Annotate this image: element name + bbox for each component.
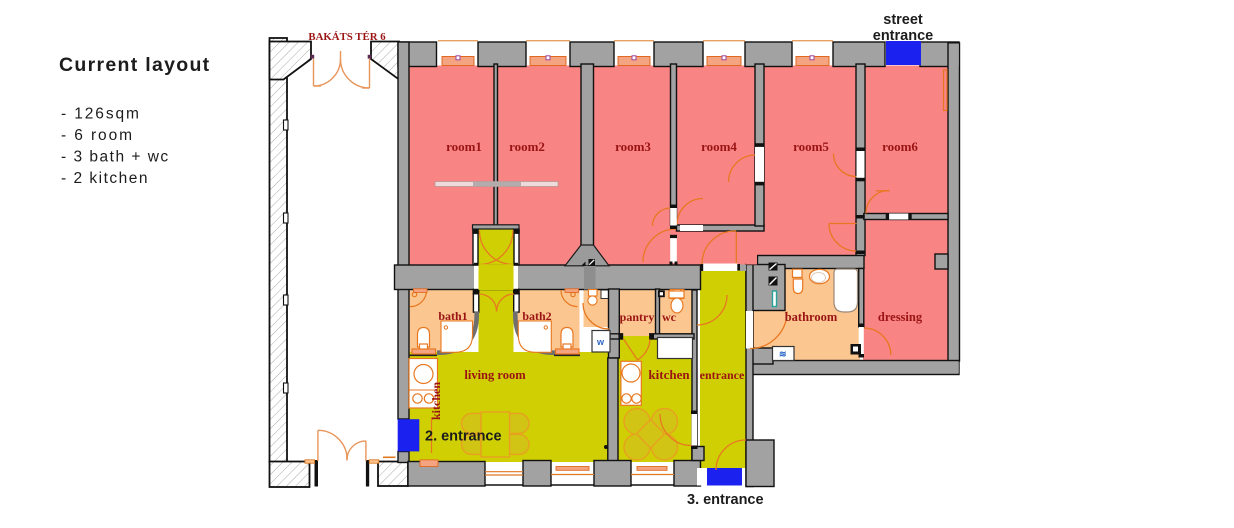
svg-text:room1: room1: [446, 139, 482, 154]
svg-text:bathroom: bathroom: [785, 310, 838, 324]
svg-text:w: w: [596, 337, 605, 347]
svg-text:room2: room2: [509, 139, 545, 154]
svg-text:pantry: pantry: [620, 310, 655, 324]
svg-text:wc: wc: [662, 310, 677, 324]
svg-text:Current layout: Current layout: [59, 54, 210, 76]
svg-text:- 6 room: - 6 room: [61, 127, 134, 144]
svg-text:≋: ≋: [779, 349, 787, 359]
svg-text:entrance: entrance: [700, 368, 745, 382]
svg-text:kitchen: kitchen: [429, 382, 443, 420]
svg-text:entrance: entrance: [873, 28, 933, 44]
svg-text:2. entrance: 2. entrance: [425, 429, 502, 445]
svg-text:3. entrance: 3. entrance: [687, 492, 764, 508]
svg-text:- 2 kitchen: - 2 kitchen: [61, 170, 149, 187]
svg-text:room4: room4: [701, 139, 737, 154]
svg-text:- 126sqm: - 126sqm: [61, 106, 141, 123]
svg-text:street: street: [883, 12, 923, 28]
svg-text:BAKÁTS TÉR 6: BAKÁTS TÉR 6: [308, 31, 386, 43]
svg-text:- 3 bath + wc: - 3 bath + wc: [61, 149, 170, 166]
svg-text:bath2: bath2: [522, 309, 551, 323]
svg-text:kitchen: kitchen: [648, 367, 690, 382]
svg-text:dressing: dressing: [878, 310, 923, 324]
svg-text:bath1: bath1: [438, 309, 467, 323]
svg-text:room3: room3: [615, 139, 651, 154]
svg-text:living room: living room: [464, 368, 526, 382]
svg-text:room5: room5: [793, 139, 829, 154]
svg-text:room6: room6: [882, 139, 918, 154]
